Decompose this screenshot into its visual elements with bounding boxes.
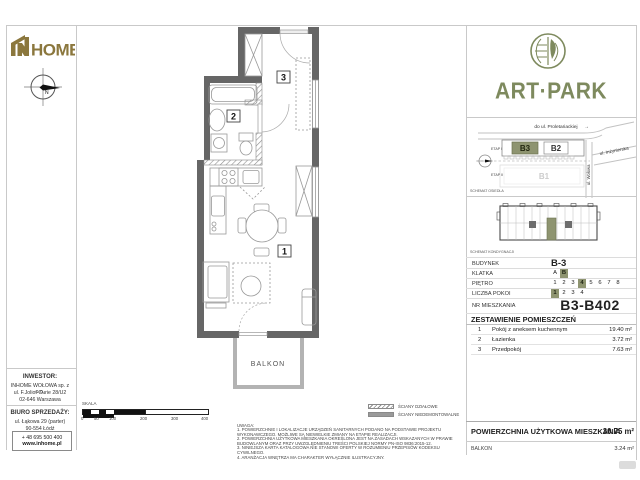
pietro-option: 3 bbox=[569, 279, 577, 288]
etap1-label: ETAP I bbox=[491, 147, 502, 151]
investor-title: INWESTOR: bbox=[8, 374, 72, 380]
room-row-name: Pokój z aneksem kuchennym bbox=[492, 327, 567, 333]
pietro-label: PIĘTRO bbox=[472, 281, 493, 287]
site-compass-icon bbox=[477, 155, 493, 167]
totals-sep bbox=[466, 421, 636, 422]
sofa-footrest bbox=[206, 303, 226, 308]
svg-text:N: N bbox=[45, 90, 49, 96]
klatka-option-a: A bbox=[551, 269, 559, 278]
balkon-sep bbox=[466, 441, 636, 442]
room-row-name: Łazienka bbox=[492, 337, 515, 343]
washbasin bbox=[209, 109, 225, 131]
kitchen-cabinet bbox=[210, 186, 226, 234]
room-row-area: 7.63 m² bbox=[560, 347, 632, 353]
row-sep bbox=[471, 344, 636, 345]
exterior-walls bbox=[197, 27, 319, 338]
sidebar-sep-2 bbox=[6, 405, 76, 406]
sidebar-sep-1 bbox=[6, 368, 76, 369]
liczba-pokoi-label: LICZBA POKOI bbox=[472, 291, 511, 297]
pietro-option: 5 bbox=[587, 279, 595, 288]
chair bbox=[238, 218, 246, 233]
sofa bbox=[203, 262, 229, 302]
row-sep bbox=[471, 334, 636, 335]
scale-tick: 0 bbox=[81, 416, 83, 421]
etap2-label: ETAP II bbox=[491, 173, 503, 177]
scale-tick: 100 bbox=[109, 416, 116, 421]
row-sep bbox=[471, 354, 636, 355]
bathroom-door-leaf bbox=[258, 104, 262, 133]
notes-block: 1. POWIERZCHNIE I LOKALIZACJE URZĄDZEŃ S… bbox=[237, 428, 463, 460]
bathroom-door-arc bbox=[262, 104, 289, 132]
scale-tick: 300 bbox=[171, 416, 178, 421]
balcony-door-arc bbox=[239, 303, 267, 331]
frame-left bbox=[6, 25, 7, 450]
floor-plan: BALKON 3 2 1 bbox=[185, 20, 335, 398]
panel-divider bbox=[466, 25, 467, 455]
toilet bbox=[239, 133, 253, 141]
scale-tick: 50 bbox=[94, 416, 99, 421]
highlighted-unit bbox=[547, 218, 556, 240]
room-row-area: 19.40 m² bbox=[560, 327, 632, 333]
brochure-page: HOME N INWESTOR: INHOME WOŁOWA sp. z o.o… bbox=[0, 0, 640, 480]
room-row-name: Przedpokój bbox=[492, 347, 521, 353]
pietro-option: 1 bbox=[551, 279, 559, 288]
compass-icon: N bbox=[24, 68, 62, 106]
note-line: 4. ARANŻACJA WNĘTRZA MA CHARAKTER WYŁĄCZ… bbox=[237, 456, 463, 461]
balcony-door bbox=[239, 333, 267, 336]
balkon-row-label: BALKON bbox=[471, 446, 492, 452]
floor-schematic bbox=[496, 202, 602, 246]
entrance-door-arc bbox=[280, 33, 310, 63]
cooktop bbox=[219, 168, 238, 186]
budynek-label: BUDYNEK bbox=[472, 261, 499, 267]
pietro-option: 8 bbox=[614, 279, 622, 288]
pietro-option-selected: 4 bbox=[578, 279, 586, 288]
contact-box: + 48 695 500 400 www.inhome.pl bbox=[12, 431, 72, 451]
office-line: ul. Łąkowa 29 (parter) bbox=[8, 419, 72, 425]
legend-label: ŚCIANY DZIAŁOWE bbox=[398, 404, 438, 409]
wardrobe-optional bbox=[296, 58, 310, 130]
klatka-label: KLATKA bbox=[472, 271, 493, 277]
row-sep bbox=[466, 313, 636, 314]
site-plan-caption: SCHEMAT OSIEDLA bbox=[470, 189, 504, 193]
scale-tick: 200 bbox=[140, 416, 147, 421]
street-right-label: ul. Wołowa bbox=[586, 164, 591, 185]
room-1-tag: 1 bbox=[282, 247, 287, 257]
balkon-label: BALKON bbox=[251, 361, 285, 368]
investor-line: 02-646 Warszawa bbox=[8, 397, 72, 403]
dining-table bbox=[246, 210, 278, 242]
legend-label: ŚCIANY NIEDEMONTOWALNE bbox=[398, 412, 459, 417]
room-row-no: 1 bbox=[478, 327, 481, 333]
staircase-b bbox=[565, 221, 572, 228]
sidebar-divider bbox=[76, 25, 77, 450]
street-diag-label: ul. Inżynierska bbox=[599, 145, 629, 156]
legend-swatch-structural bbox=[368, 412, 394, 417]
room-2-tag: 2 bbox=[231, 112, 236, 122]
chair bbox=[278, 218, 286, 233]
room-row-no: 2 bbox=[478, 337, 481, 343]
pietro-option: 7 bbox=[605, 279, 613, 288]
partition-walls bbox=[204, 83, 262, 165]
room-3-tag: 3 bbox=[281, 73, 286, 83]
row-sep bbox=[466, 324, 636, 325]
scale-tick: 400 bbox=[201, 416, 208, 421]
panel-sep-1 bbox=[466, 117, 636, 118]
site-b3: B3 bbox=[520, 144, 531, 153]
fridge bbox=[212, 196, 225, 216]
klatka-option-b: B bbox=[560, 269, 568, 278]
room-row-area: 3.72 m² bbox=[560, 337, 632, 343]
street-top-label: do ul. Proletariackiej bbox=[534, 124, 577, 130]
pietro-option: 6 bbox=[596, 279, 604, 288]
scale-bar bbox=[82, 409, 209, 415]
artpark-logo: ART·PARK bbox=[468, 79, 634, 105]
rooms-title: ZESTAWIENIE POMIESZCZEŃ bbox=[471, 315, 576, 324]
investor-line: ul. F.Joliot-Curie 28/U2 bbox=[8, 390, 72, 396]
chair bbox=[254, 248, 269, 256]
pietro-option: 2 bbox=[560, 279, 568, 288]
scale-label: SKALA bbox=[82, 401, 97, 406]
site-plan: B3 B2 B1 do ul. Proletariackiej → ETAP I… bbox=[468, 120, 638, 198]
legend-swatch-partition bbox=[368, 404, 394, 409]
entrance-door-leaf bbox=[280, 30, 308, 34]
svg-text:HOME: HOME bbox=[31, 41, 75, 59]
panel-sep-2 bbox=[466, 196, 636, 197]
website-link[interactable]: www.inhome.pl bbox=[13, 441, 71, 447]
arrow-icon: → bbox=[584, 124, 589, 130]
office-title: BIURO SPRZEDAŻY: bbox=[8, 410, 72, 416]
nr-mieszkania-label: NR MIESZKANIA bbox=[472, 303, 516, 309]
site-b1: B1 bbox=[539, 172, 550, 181]
rug bbox=[233, 263, 270, 303]
site-b2: B2 bbox=[551, 144, 562, 153]
artpark-emblem-icon bbox=[528, 31, 568, 71]
apartment-number: B3-B402 bbox=[545, 297, 635, 313]
staircase-a bbox=[529, 221, 536, 228]
usable-area-value: 30.75 m² bbox=[570, 427, 634, 436]
room-row-no: 3 bbox=[478, 347, 481, 353]
frame-right bbox=[636, 25, 637, 460]
corner-mark bbox=[619, 461, 636, 469]
balkon-row-value: 3.24 m² bbox=[570, 446, 634, 452]
kitchen-sink bbox=[243, 171, 259, 184]
inhome-logo: HOME bbox=[11, 34, 75, 58]
floor-schematic-caption: SCHEMAT KONDYGNACJI bbox=[470, 250, 514, 254]
coffee-table bbox=[241, 276, 261, 296]
